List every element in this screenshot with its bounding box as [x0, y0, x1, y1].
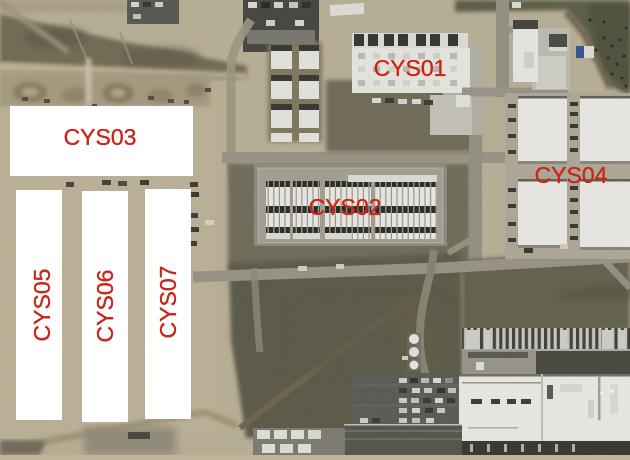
svg-text:CYS06: CYS06 [92, 270, 118, 343]
svg-text:CYS03: CYS03 [64, 124, 137, 150]
svg-text:CYS04: CYS04 [535, 162, 608, 188]
svg-text:CYS02: CYS02 [309, 194, 382, 220]
svg-text:CYS05: CYS05 [29, 269, 55, 342]
svg-text:CYS07: CYS07 [155, 266, 181, 339]
svg-text:CYS01: CYS01 [374, 55, 447, 81]
